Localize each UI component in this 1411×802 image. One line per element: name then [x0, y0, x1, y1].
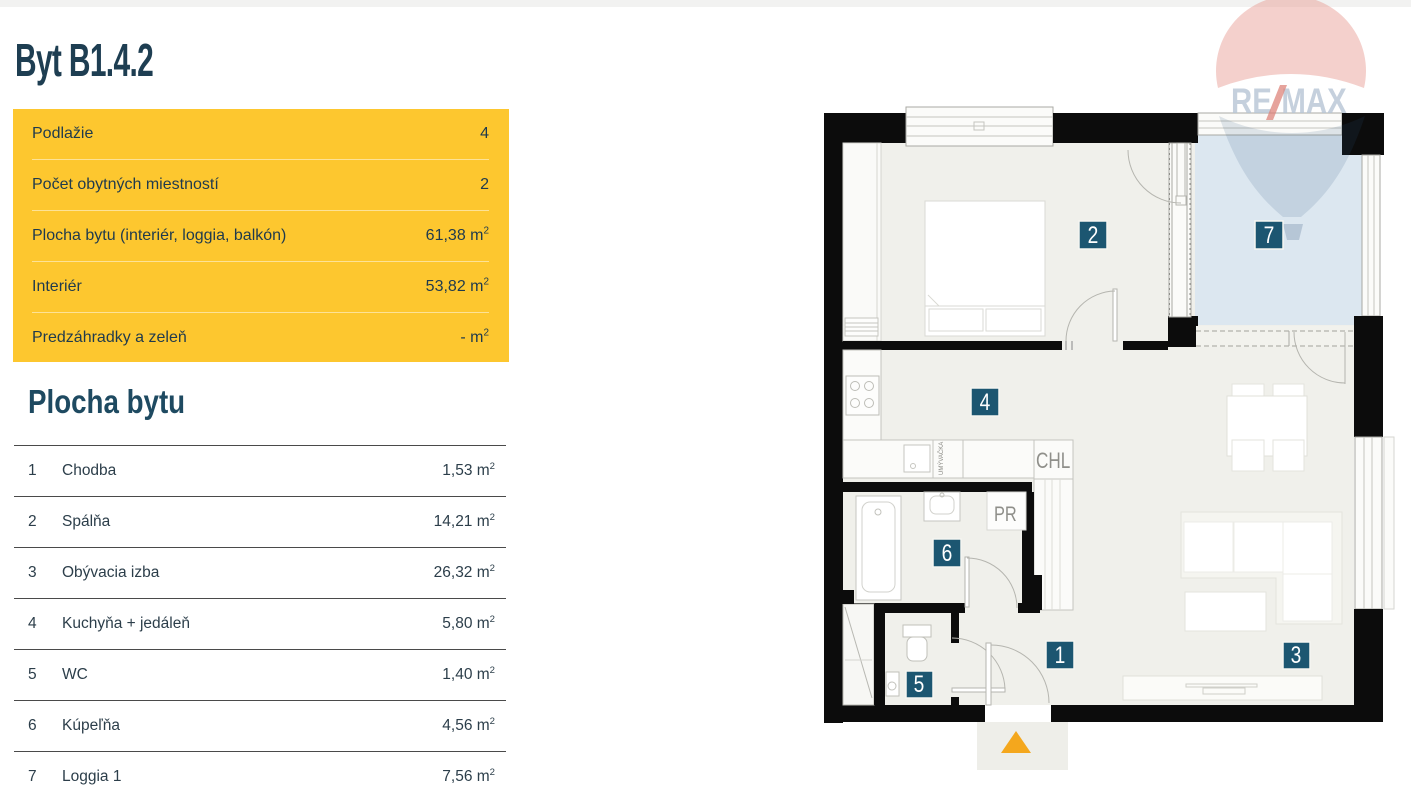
- svg-text:6: 6: [942, 539, 953, 567]
- svg-text:PR: PR: [994, 502, 1017, 525]
- svg-text:4: 4: [980, 388, 991, 416]
- svg-text:MAX: MAX: [1281, 82, 1347, 121]
- svg-text:1: 1: [1055, 641, 1066, 669]
- svg-text:CHL: CHL: [1036, 449, 1070, 474]
- svg-text:3: 3: [1291, 641, 1302, 669]
- svg-text:5: 5: [914, 670, 925, 698]
- svg-text:2: 2: [1088, 221, 1099, 249]
- svg-text:7: 7: [1264, 221, 1275, 249]
- svg-text:RE: RE: [1231, 82, 1272, 121]
- svg-text:UMÝVAČKA: UMÝVAČKA: [938, 442, 945, 475]
